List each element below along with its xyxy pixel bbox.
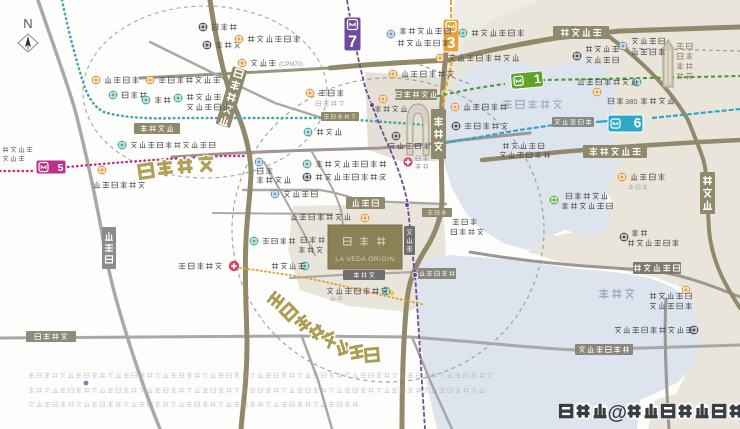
svg-text:5: 5: [58, 162, 64, 174]
svg-text:(CPM70): (CPM70): [279, 62, 303, 68]
svg-text:380: 380: [625, 97, 638, 106]
svg-text:6: 6: [634, 115, 642, 130]
svg-text:7: 7: [348, 33, 357, 51]
svg-text:@: @: [607, 402, 627, 424]
svg-text:N: N: [23, 16, 32, 31]
svg-text:LA VEDA ORIGIN: LA VEDA ORIGIN: [335, 256, 394, 263]
svg-text:3: 3: [447, 35, 456, 52]
svg-text:YC: YC: [378, 176, 386, 182]
svg-text:1: 1: [533, 72, 541, 87]
